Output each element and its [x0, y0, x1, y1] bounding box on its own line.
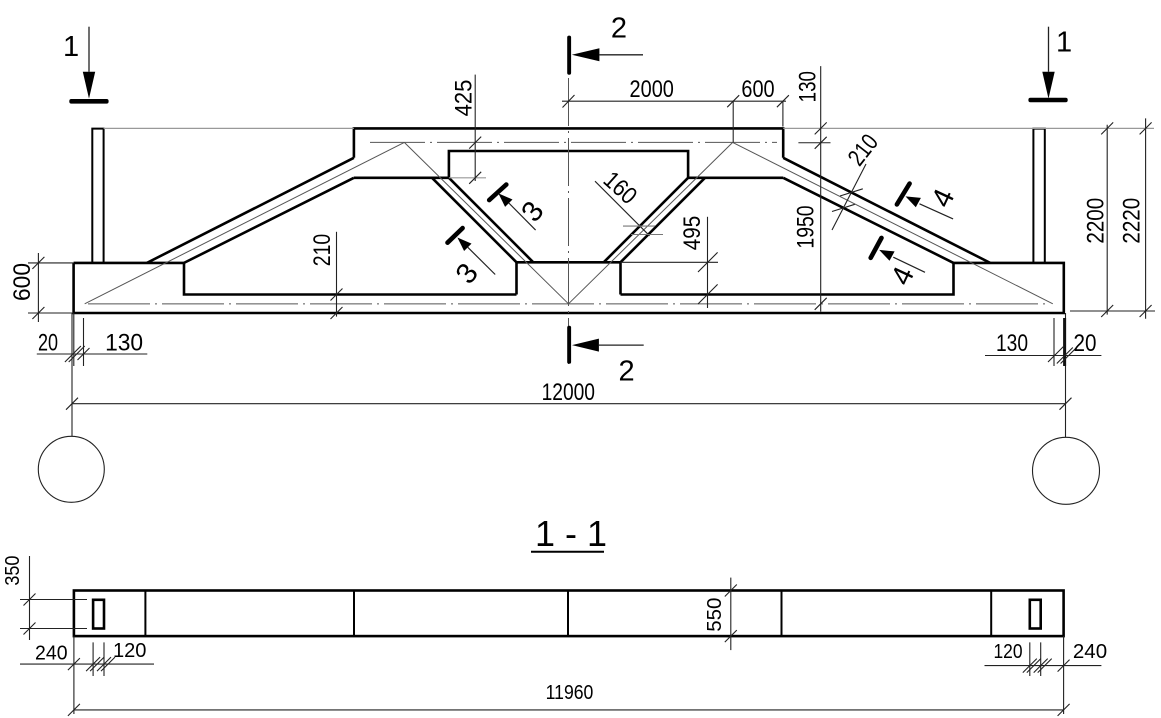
- svg-text:2: 2: [618, 355, 634, 387]
- svg-text:2200: 2200: [1082, 198, 1109, 244]
- svg-text:425: 425: [450, 80, 477, 117]
- svg-text:1: 1: [63, 31, 79, 63]
- svg-text:1: 1: [1056, 26, 1072, 58]
- svg-text:2220: 2220: [1118, 198, 1145, 244]
- svg-text:120: 120: [993, 641, 1022, 664]
- svg-text:1 - 1: 1 - 1: [535, 513, 607, 554]
- svg-text:350: 350: [2, 556, 24, 586]
- svg-text:2000: 2000: [630, 75, 674, 102]
- svg-text:550: 550: [703, 598, 726, 632]
- svg-text:12000: 12000: [542, 378, 595, 406]
- svg-text:2: 2: [611, 13, 627, 45]
- svg-text:20: 20: [1074, 330, 1097, 357]
- svg-text:210: 210: [308, 234, 335, 266]
- svg-text:20: 20: [38, 330, 58, 356]
- svg-text:600: 600: [9, 263, 36, 301]
- svg-text:120: 120: [113, 640, 147, 662]
- svg-text:130: 130: [794, 71, 821, 102]
- svg-text:130: 130: [105, 329, 143, 356]
- svg-text:11960: 11960: [546, 682, 594, 705]
- svg-text:600: 600: [741, 75, 774, 102]
- svg-text:495: 495: [679, 216, 706, 250]
- svg-text:240: 240: [1073, 640, 1107, 663]
- svg-text:1950: 1950: [791, 205, 818, 248]
- svg-text:240: 240: [35, 642, 67, 665]
- svg-text:130: 130: [996, 329, 1028, 357]
